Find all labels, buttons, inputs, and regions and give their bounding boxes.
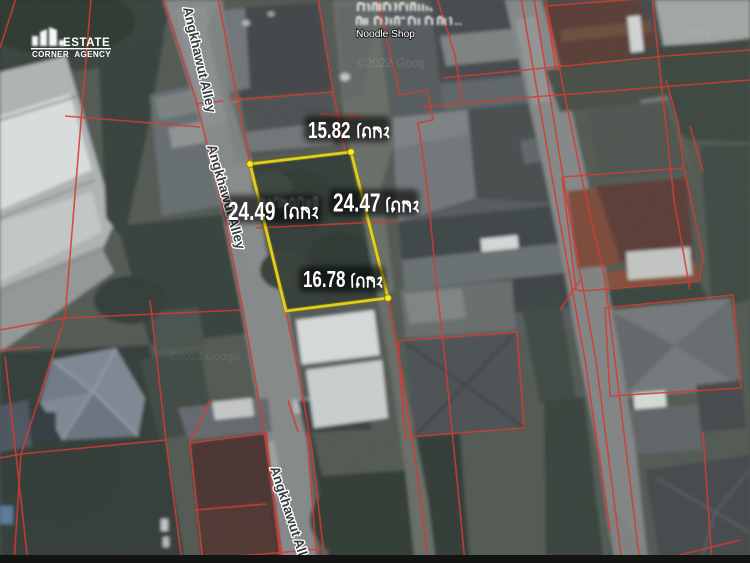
- svg-text:16.78: 16.78: [303, 268, 346, 293]
- svg-text:©2022 Google: ©2022 Google: [170, 351, 241, 363]
- svg-text:©2022 Goog: ©2022 Goog: [357, 56, 425, 70]
- svg-text:24.47: 24.47: [333, 188, 381, 218]
- svg-text:ESTATE: ESTATE: [63, 37, 110, 49]
- svg-text:CORNER AGENCY: CORNER AGENCY: [32, 50, 111, 59]
- svg-text:2022: 2022: [688, 28, 711, 39]
- svg-text:24.49: 24.49: [228, 196, 276, 226]
- svg-text:Noodle Shop: Noodle Shop: [356, 29, 415, 40]
- svg-text:15.82: 15.82: [308, 119, 351, 144]
